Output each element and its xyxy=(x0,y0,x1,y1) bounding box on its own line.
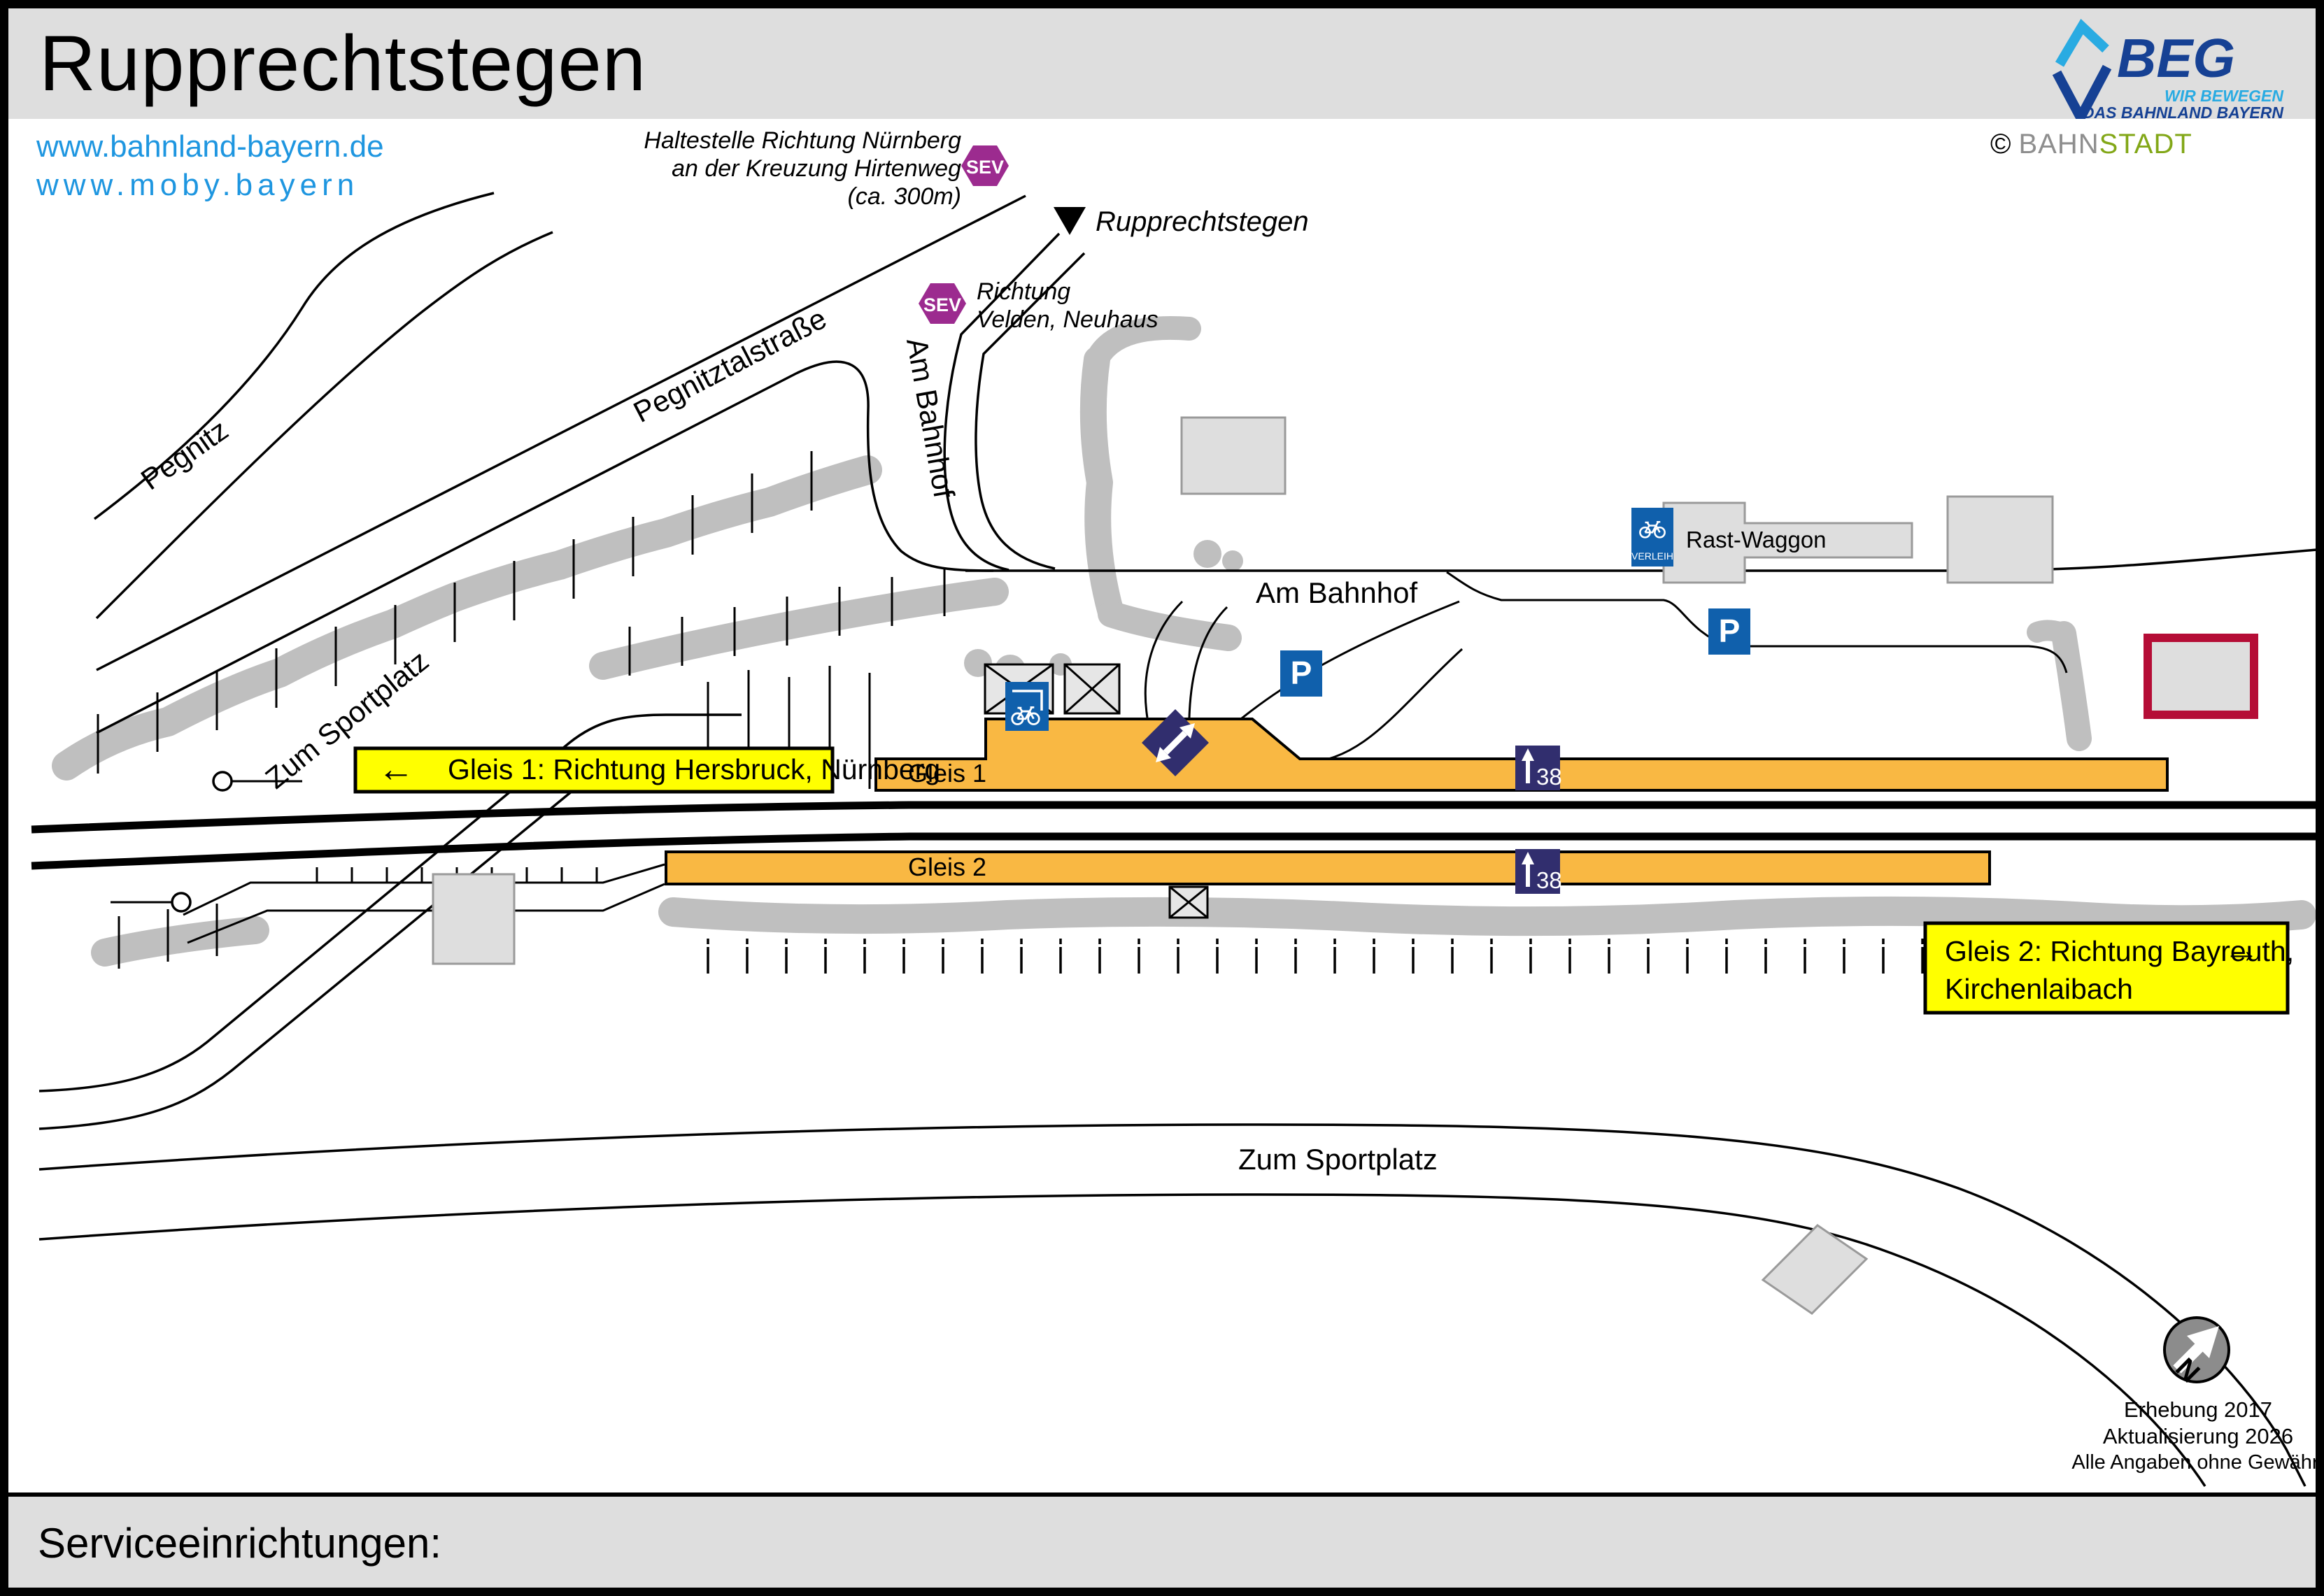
sign-gleis1: ← Gleis 1: Richtung Hersbruck, Nürnberg xyxy=(355,748,940,792)
platform-gleis2 xyxy=(666,852,1990,884)
platform-height-marker-gleis2: 38 xyxy=(1515,849,1562,894)
bike-rental-icon: VERLEIH xyxy=(1631,508,1673,567)
sign-gleis1-text: Gleis 1: Richtung Hersbruck, Nürnberg xyxy=(448,753,940,785)
beg-wordmark: BEG xyxy=(2117,27,2235,90)
building xyxy=(1948,497,2053,583)
parking-bay-outline xyxy=(1447,572,2067,673)
track-1 xyxy=(31,805,2317,829)
sev-direction-line2: Velden, Neuhaus xyxy=(977,306,1159,333)
street-am-bahnhof-horizontal: Am Bahnhof xyxy=(1256,576,1417,609)
shelter-box xyxy=(1170,887,1207,918)
website-links: www.bahnland-bayern.de www.moby.bayern xyxy=(36,127,384,204)
disclaimer: Alle Angaben ohne Gewähr! xyxy=(2071,1451,2324,1474)
svg-text:P: P xyxy=(1291,655,1312,691)
survey-notes: Erhebung 2017 Aktualisierung 2026 Alle A… xyxy=(2071,1397,2324,1474)
station-name: Rupprechtstegen xyxy=(1096,206,1309,237)
gate-marker xyxy=(172,893,190,911)
building xyxy=(433,874,514,964)
survey-year: Erhebung 2017 xyxy=(2124,1397,2272,1422)
footer-title: Serviceeinrichtungen: xyxy=(38,1519,441,1567)
river-pegnitz-lower xyxy=(97,232,553,618)
parking-icon: P xyxy=(1708,608,1750,655)
sign-gleis2-line2: Kirchenlaibach xyxy=(1945,973,2133,1005)
station-triangle-icon xyxy=(1054,207,1086,235)
header-bar: Rupprechtstegen xyxy=(8,8,2316,119)
update-year: Aktualisierung 2026 xyxy=(2103,1424,2293,1448)
sign-gleis2-arrow: → xyxy=(2223,930,2260,971)
svg-text:P: P xyxy=(1719,613,1741,649)
sev-badge-label: SEV xyxy=(966,157,1004,178)
street-pegnitztalstrasse: Pegnitztalstraße xyxy=(628,301,832,429)
page-title: Rupprechtstegen xyxy=(39,18,646,108)
sev-direction-line1: Richtung xyxy=(977,278,1070,305)
bike-parking-icon xyxy=(1005,682,1049,731)
platform-gleis2-label: Gleis 2 xyxy=(908,853,986,881)
street-am-bahnhof-vertical: Am Bahnhof xyxy=(900,336,961,501)
bahnstadt-bahn: BAHN xyxy=(2018,129,2099,159)
footer-bar: Serviceeinrichtungen: xyxy=(8,1492,2316,1588)
bike-rental-label: VERLEIH xyxy=(1631,550,1673,562)
station-marker: Rupprechtstegen xyxy=(1054,206,1309,237)
beg-logo: BEG WIR BEWEGEN DAS BAHNLAND BAYERN xyxy=(2050,8,2302,119)
beg-claim-line2: DAS BAHNLAND BAYERN xyxy=(2083,104,2283,122)
bahnstadt-stadt: STADT xyxy=(2099,129,2192,159)
parking-icon: P xyxy=(1280,650,1322,697)
building-highlighted xyxy=(2148,638,2254,715)
road-zum-sportplatz-lower-north xyxy=(39,1125,2305,1486)
shelter-box xyxy=(1065,664,1119,713)
street-zum-sportplatz-lower: Zum Sportplatz xyxy=(1238,1143,1438,1176)
bahnstadt-credit: ©BAHNSTADT xyxy=(1990,129,2192,160)
height-value: 38 xyxy=(1536,867,1562,893)
sev-stop-velden: SEV Richtung Velden, Neuhaus xyxy=(919,278,1159,333)
sign-gleis2: Gleis 2: Richtung Bayreuth, → Kirchenlai… xyxy=(1925,923,2294,1013)
building xyxy=(1182,418,1285,494)
sev-note-line3: (ca. 300m) xyxy=(848,183,962,210)
link-moby-bayern[interactable]: www.moby.bayern xyxy=(36,166,384,204)
gate-marker xyxy=(213,772,232,790)
compass-icon: N xyxy=(2164,1318,2229,1388)
rast-waggon-label: Rast-Waggon xyxy=(1686,527,1827,553)
platform-height-marker-gleis1: 38 xyxy=(1515,746,1562,790)
sign-gleis1-arrow: ← xyxy=(378,749,414,790)
street-pegnitz: Pegnitz xyxy=(135,413,234,497)
link-bahnland-bayern[interactable]: www.bahnland-bayern.de xyxy=(36,127,384,166)
road-zum-sportplatz-lower-south xyxy=(39,1195,2205,1486)
sev-note-line1: Haltestelle Richtung Nürnberg xyxy=(644,127,961,154)
sev-badge-label: SEV xyxy=(923,294,961,315)
station-map: Gleis 1 Gleis 2 38 38 Rast-Waggon xyxy=(0,0,2324,1596)
beg-claim-line1: WIR BEWEGEN xyxy=(2164,87,2283,106)
sev-note-line2: an der Kreuzung Hirtenweg xyxy=(672,155,961,182)
height-value: 38 xyxy=(1536,764,1562,790)
copyright-icon: © xyxy=(1990,129,2011,159)
sev-stop-nuernberg: Haltestelle Richtung Nürnberg an der Kre… xyxy=(644,127,1009,210)
